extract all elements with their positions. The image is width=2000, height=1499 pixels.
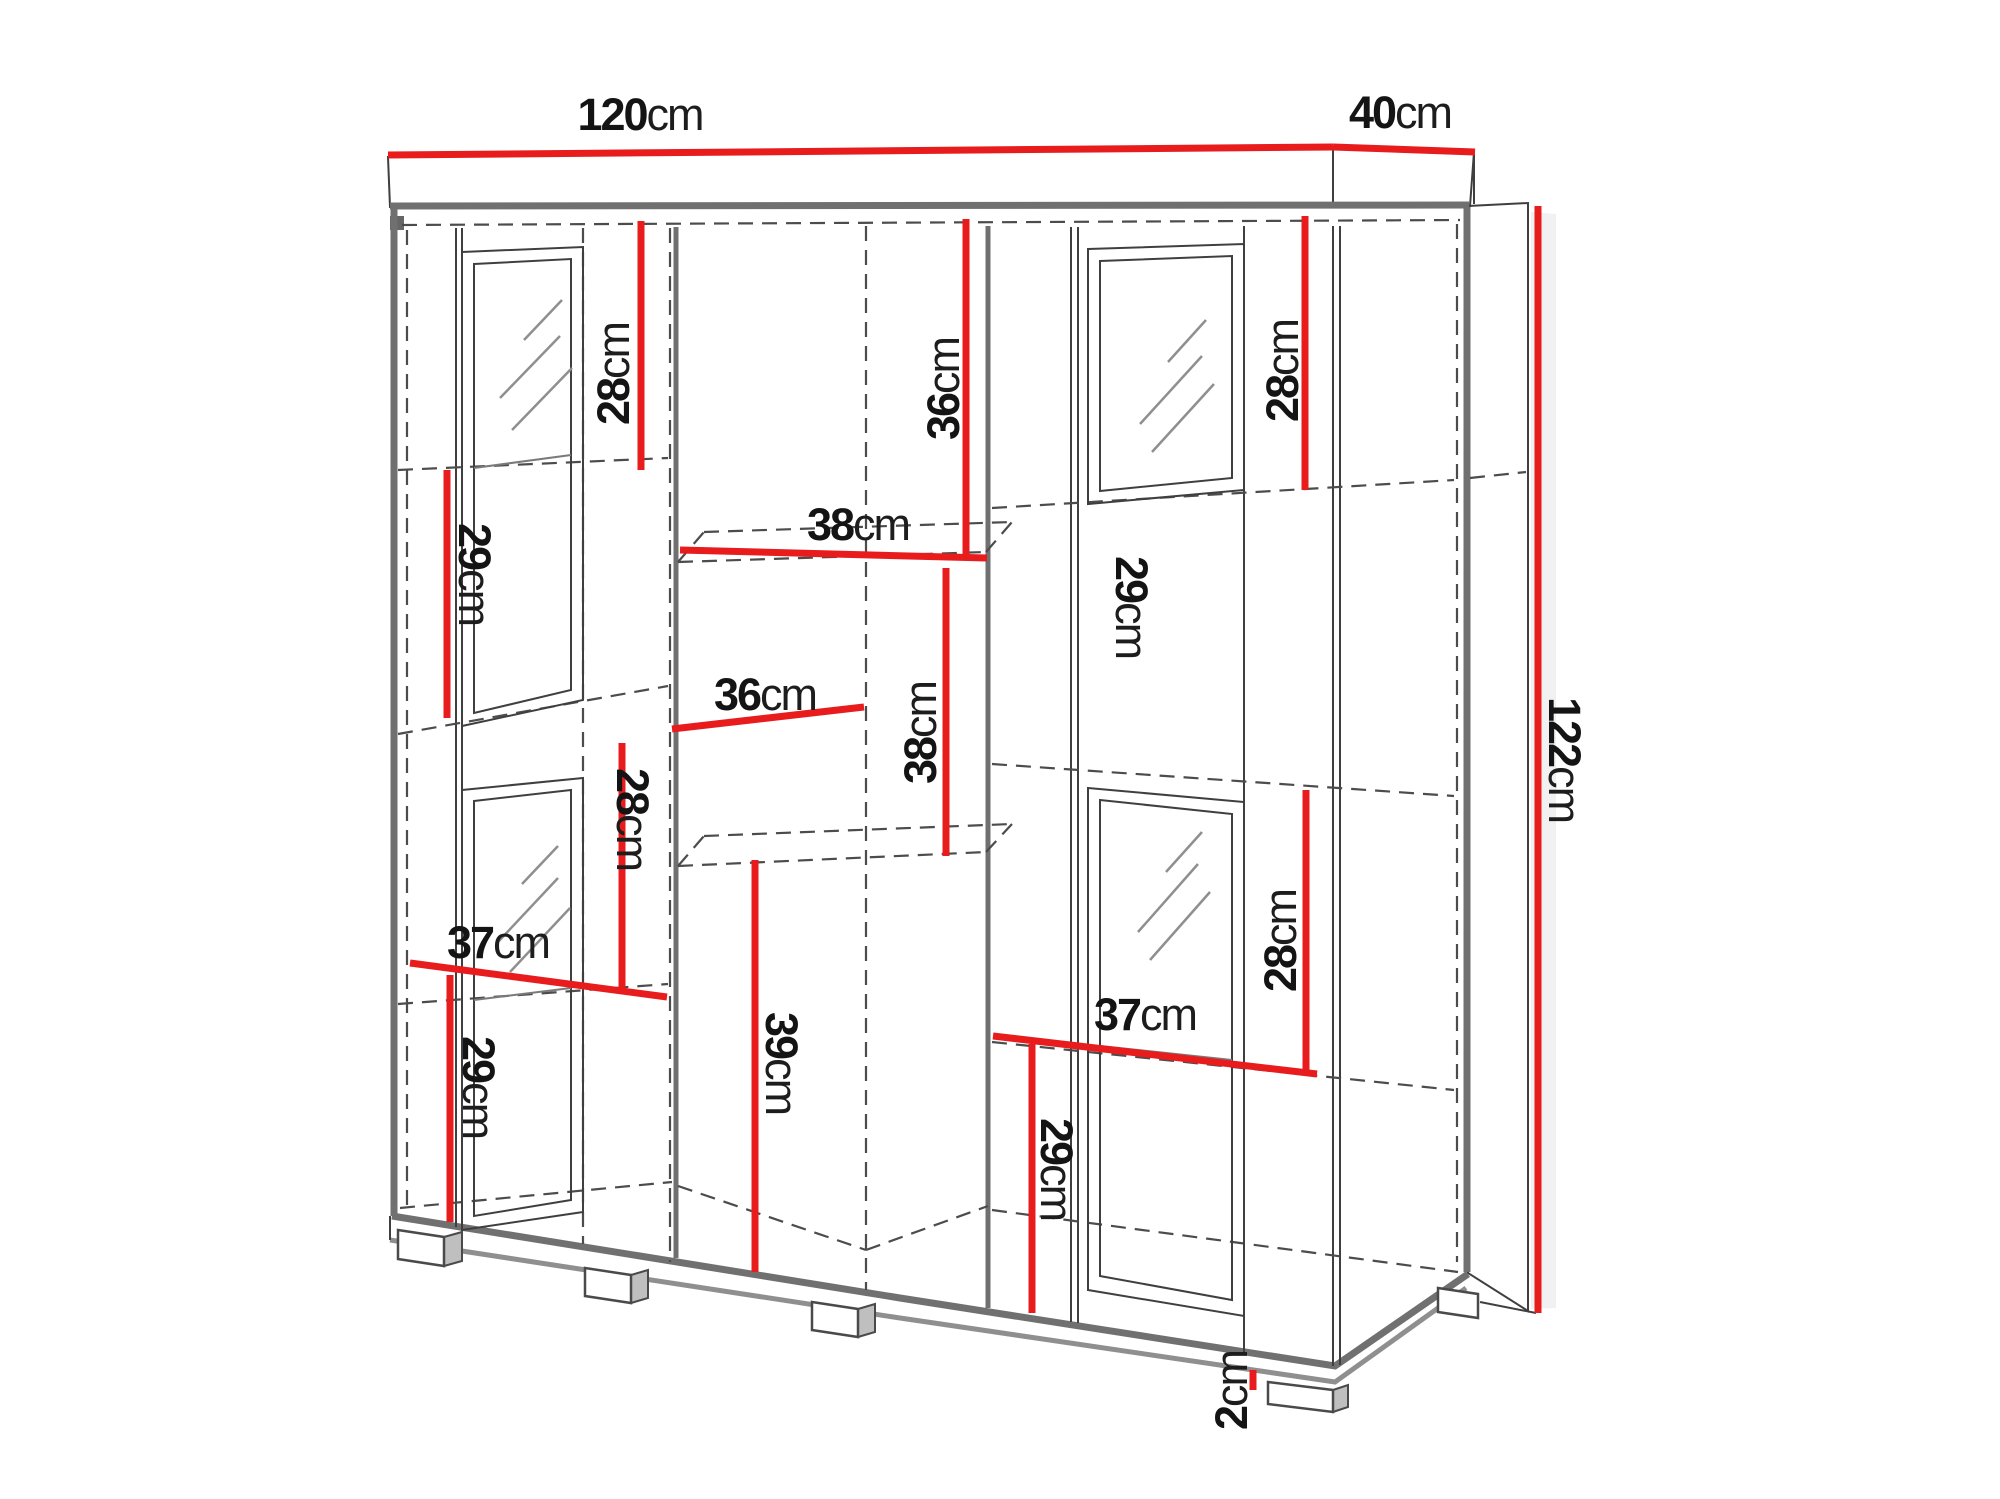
dim-value: 122 [1539, 697, 1590, 767]
front-top-edge [390, 205, 1469, 206]
dim-value: 37 [1094, 989, 1141, 1040]
dim-label-depth: 40cm [1349, 87, 1451, 138]
dim-value: 39 [756, 1012, 807, 1059]
dim-unit: cm [1257, 320, 1308, 376]
dim-value: 36 [918, 393, 969, 440]
cabinet-dimension-diagram: 120cm 40cm 122cm 28cm 36cm 28cm 29cm 38c… [0, 0, 2000, 1499]
foot-3-side [858, 1304, 875, 1337]
dim-unit: cm [647, 89, 703, 140]
foot-3 [812, 1302, 858, 1337]
dim-value: 37 [447, 917, 494, 968]
dim-label-right-29: 29cm [1106, 556, 1157, 658]
dim-label-center-38-width: 38cm [807, 499, 909, 550]
dim-value: 38 [807, 499, 854, 550]
dim-unit: cm [1395, 87, 1451, 138]
foot-4-side [1333, 1385, 1348, 1412]
dim-unit: cm [588, 323, 639, 379]
dim-value: 28 [1255, 945, 1306, 992]
foot-2 [585, 1268, 631, 1303]
dim-unit: cm [756, 1058, 807, 1114]
dim-label-left-bottom-29: 29cm [453, 1036, 504, 1138]
dim-unit: cm [895, 682, 946, 738]
dim-line-width-120 [388, 147, 1333, 155]
dim-label-top-right-28: 28cm [1257, 320, 1308, 422]
foot-5 [1438, 1288, 1478, 1318]
dim-line-depth-40 [1333, 147, 1475, 152]
dim-unit: cm [493, 917, 549, 968]
dim-value: 29 [449, 523, 500, 570]
dim-unit: cm [853, 499, 909, 550]
dim-label-center-38-height: 38cm [895, 682, 946, 784]
dim-label-center-36-depth: 36cm [714, 669, 816, 720]
dim-label-feet-2: 2cm [1206, 1351, 1257, 1430]
dim-unit: cm [1140, 989, 1196, 1040]
dim-value: 29 [1106, 556, 1157, 603]
dim-label-center-39: 39cm [756, 1012, 807, 1114]
right-side-panel [1468, 203, 1528, 1311]
dim-unit: cm [1255, 890, 1306, 946]
dim-label-top-left-28: 28cm [588, 323, 639, 425]
dim-label-right-bottom-29: 29cm [1031, 1118, 1082, 1220]
dim-label-left-29: 29cm [449, 523, 500, 625]
dim-value: 2 [1206, 1406, 1257, 1430]
dim-unit: cm [1106, 602, 1157, 658]
dim-value: 29 [453, 1036, 504, 1083]
dim-value: 29 [1031, 1118, 1082, 1165]
foot-2-side [631, 1270, 648, 1303]
dim-label-left-37-width: 37cm [447, 917, 549, 968]
dim-label-top-center-36: 36cm [918, 338, 969, 440]
dim-value: 36 [714, 669, 761, 720]
dim-value: 28 [1257, 375, 1308, 422]
dim-value: 28 [588, 378, 639, 425]
foot-4 [1268, 1382, 1333, 1412]
dim-label-height: 122cm [1539, 697, 1590, 822]
dim-label-right-mid-28: 28cm [1255, 890, 1306, 992]
dim-unit: cm [607, 814, 658, 870]
dim-unit: cm [453, 1082, 504, 1138]
foot-1 [398, 1230, 444, 1266]
dim-unit: cm [760, 669, 816, 720]
dim-unit: cm [449, 569, 500, 625]
dim-label-right-37-width: 37cm [1094, 989, 1196, 1040]
dim-unit: cm [1539, 766, 1590, 822]
dim-value: 38 [895, 737, 946, 784]
dim-value: 120 [577, 89, 647, 140]
dim-value: 28 [607, 768, 658, 815]
diagram-page: 120cm 40cm 122cm 28cm 36cm 28cm 29cm 38c… [0, 0, 2000, 1499]
dim-label-width: 120cm [577, 89, 702, 140]
dim-value: 40 [1349, 87, 1396, 138]
dim-unit: cm [1206, 1351, 1257, 1407]
right-shelf-1-side [1470, 472, 1526, 478]
dim-unit: cm [1031, 1164, 1082, 1220]
dim-unit: cm [918, 338, 969, 394]
dim-label-left-mid-28: 28cm [607, 768, 658, 870]
foot-1-side [444, 1232, 462, 1266]
